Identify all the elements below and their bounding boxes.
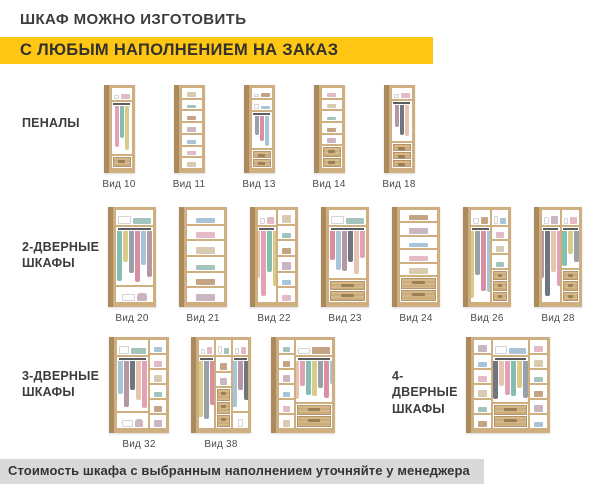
cabinet-illustration [321,207,369,307]
shelf-cell [187,288,224,302]
shelf-item [478,407,486,412]
zone-open [233,411,248,428]
cabinet-column [542,210,560,302]
drawer-handle [221,392,225,395]
shelf-item [551,216,558,224]
shelf-cell [530,385,547,400]
shelf-item [261,106,269,110]
hanging-rod [118,228,151,230]
cabinet-interior [474,340,547,428]
clothing-item [125,106,129,150]
clothing-item [265,116,269,145]
cabinet-card: Вид 21 [171,207,235,325]
zone-hang [329,225,366,278]
shelf-item [478,390,486,397]
drawer [563,292,579,301]
cabinet-view-label: Вид 21 [186,313,219,325]
cabinet-illustration [463,207,511,307]
clothing-item [244,361,248,400]
drawer-handle [398,163,404,166]
page-title: ШКАФ МОЖНО ИЗГОТОВИТЬ [20,11,246,28]
shelf-cell [474,340,491,355]
shelf-item [298,348,310,354]
cabinet-card: Вид 22 [242,207,306,325]
drawer-handle [118,160,124,163]
shelf-item [254,104,260,109]
cabinet-illustration [392,207,440,307]
cabinet-interior [279,340,332,428]
cabinet-column [400,210,437,302]
shelf-item [154,420,162,427]
clothing-item [123,231,128,263]
section-row-3-and-4-door: 3-ДВЕРНЫЕ ШКАФЫВид 32Вид 384-ДВЕРНЫЕ ШКА… [0,337,554,451]
shelf-cell [182,158,202,168]
shelf-cell [182,147,202,159]
cabinet-card: Вид 20 [100,207,164,325]
shelf-item [121,94,129,99]
shelf-item [207,347,212,354]
cabinet-card: Вид 38 [186,337,256,451]
shelf-cell [530,415,547,428]
cabinet-card: Вид 13 [228,85,290,191]
cabinet-card: Вид 10 [88,85,150,191]
drawer [393,160,411,167]
zone-drawers [112,154,132,168]
cabinet-view-label: Вид 26 [470,313,503,325]
shelf-item [500,218,506,224]
cabinet-column [329,210,366,302]
shelf-cell [278,257,296,273]
shelf-item [481,217,489,224]
hanging-clothes [233,357,248,411]
drawer-handle [504,419,516,422]
shelf-item [327,93,337,97]
shelf-item [118,216,131,224]
cabinet-card: Вид 32 [104,337,174,451]
clothing-item [260,116,264,140]
shelf-item [478,421,486,427]
shelf-cell [400,250,437,263]
cabinet-column [187,210,224,302]
clothing-item [261,231,266,296]
cabinet-column [258,210,276,302]
cabinet-card [268,337,338,451]
drawer [323,158,341,167]
drawer-handle [328,150,334,153]
shelf-item [282,280,291,285]
hanging-rod [393,102,411,104]
zone-top [542,210,560,225]
shelf-cell [279,355,294,370]
cabinet-interior [199,340,248,428]
cabinet-illustration [191,337,251,433]
shelf-item [534,377,542,382]
shelf-item [196,247,215,254]
shelf-item [283,406,290,412]
clothing-item [117,231,122,281]
drawer-handle [498,274,503,277]
shelf-item [283,347,290,352]
zone-shelves [530,340,547,428]
drawer-handle [221,418,225,421]
cabinet-interior [116,210,153,302]
clothing-item [300,361,305,386]
footer-note-text: Стоимость шкафа с выбранным наполнением … [8,463,470,478]
shelf-cell [150,415,166,428]
shelf-cell [182,135,202,147]
hanging-rod [253,113,271,115]
cabinet-column [199,340,214,428]
shelf-item [187,116,197,120]
clothing-item [142,361,147,408]
shelf-item [564,218,569,224]
drawer-handle [258,162,264,165]
clothing-item [354,231,359,274]
hanging-rod [119,358,147,360]
drawer-handle [398,155,404,158]
cabinet-interior [392,88,412,168]
zone-shelves [278,210,296,302]
clothing-item [542,231,544,278]
shelf-cell [322,123,342,135]
shelf-item [154,375,162,382]
shelf-item [409,256,428,261]
cabinet-view-label: Вид 22 [257,313,290,325]
shelf-item [187,127,197,132]
shelf-item [241,347,246,354]
drawer [217,389,230,401]
clothing-item [130,361,135,390]
shelf-cell [474,415,491,428]
zone-hang [493,355,528,402]
shelf-cell [322,111,342,123]
cabinet-view-label: Вид 24 [399,313,432,325]
shelf-item [496,232,504,238]
shelf-item [570,217,577,224]
cabinet-column [392,88,412,168]
drawer-handle [568,274,573,277]
cabinet-column [491,340,528,428]
cabinet-card: Вид 24 [384,207,448,325]
shelf-cell [150,400,166,415]
hanging-clothes [199,357,214,428]
cabinet-card: Вид 26 [455,207,519,325]
clothing-item [306,361,311,395]
shelf-item [495,346,507,354]
hanging-clothes [252,112,272,147]
shelf-item [267,217,274,224]
zone-drawers [492,268,508,302]
shelf-cell [474,400,491,415]
drawer-handle [341,284,354,287]
shelf-item [509,348,526,354]
hanging-clothes [258,227,276,302]
shelf-cell [279,415,294,428]
drawer [494,416,527,427]
hanging-clothes [112,102,132,154]
shelf-item [409,243,428,247]
shelf-cell [182,111,202,123]
clothing-item [118,361,123,394]
shelf-cell [530,400,547,415]
clothing-item [493,361,498,399]
clothing-item [487,231,490,292]
cabinet-column [322,88,342,168]
cabinet-interior [117,340,166,428]
cabinet-illustration [109,337,169,433]
shelf-cell [279,370,294,385]
drawer [330,291,365,301]
shelf-cell [182,100,202,112]
clothing-item [400,105,404,135]
shelf-cell [182,88,202,100]
cabinet-view-label: Вид 28 [541,313,574,325]
shelf-item [282,295,291,301]
cabinet-view-label: Вид 23 [328,313,361,325]
cabinet-column [279,340,294,428]
shelf-item [331,216,344,224]
shelf-item [534,422,542,427]
shelf-item [154,347,162,352]
clothing-item [574,231,579,262]
hanging-clothes [562,227,580,268]
drawer-handle [568,284,573,287]
shelf-cell [187,241,224,257]
bag-item [135,419,143,427]
cabinet-column [231,340,248,428]
clothing-item [342,231,347,272]
zone-shelves [279,340,294,428]
drawer-handle [308,408,321,411]
section-label: 4-ДВЕРНЫЕ ШКАФЫ [350,368,462,417]
shelf-item [187,151,197,155]
shelf-item [154,361,162,367]
drawer-handle [308,419,321,422]
zone-hang [116,225,153,286]
shelf-cell [278,210,296,226]
shelf-item [283,420,290,427]
drawer [494,405,527,416]
cabinet-view-label: Вид 10 [102,179,135,191]
section-label: 3-ДВЕРНЫЕ ШКАФЫ [0,368,104,401]
drawer-handle [221,405,225,408]
shelf-item [201,349,205,355]
cabinet-card: Вид 18 [368,85,430,191]
clothing-item [481,231,486,290]
drawer [297,405,331,416]
drawer [323,147,341,156]
shelf-cell [400,210,437,223]
shelf-cell [279,400,294,415]
clothing-item [330,361,332,385]
clothing-item [475,231,480,275]
zone-drawers [562,268,580,302]
drawer-handle [398,147,404,150]
cabinet-interior [187,210,224,302]
clothing-item [296,361,298,399]
cabinet-card: Вид 11 [158,85,220,191]
clothing-item [210,361,214,405]
zone-hang [117,355,148,411]
cabinet-column [116,210,153,302]
cabinet-illustration [250,207,298,307]
drawer [297,416,331,427]
zone-top [562,210,580,225]
cabinet-illustration [466,337,550,433]
zone-drawers [322,144,342,168]
zone-drawers [493,402,528,428]
zone-drawers [329,278,366,302]
zone-shelves [216,355,231,387]
shelf-cell [474,385,491,400]
hanging-rod [543,228,558,230]
shelf-item [494,216,498,224]
zone-hang [252,110,272,147]
zone-top [258,210,276,225]
shelf-item [282,233,291,238]
shelf-cell [322,100,342,112]
cabinet-column [474,340,491,428]
shelf-item [283,361,290,367]
clothing-item [360,231,365,258]
zone-top [392,88,412,99]
shelf-cell [279,340,294,355]
shelf-cell [492,227,508,241]
shelf-item [224,348,229,354]
shelf-item [282,248,291,254]
clothing-item [204,361,209,418]
shelf-item [154,392,162,397]
cabinet-interior [400,210,437,302]
section-row-penaly: ПЕНАЛЫВид 10Вид 11Вид 13Вид 14Вид 18 [0,85,438,191]
hanging-rod [331,228,364,230]
cabinet-column [471,210,490,302]
clothing-item [324,361,329,399]
hanging-rod [113,103,131,105]
clothing-item [545,231,550,296]
zone-shelves [474,340,491,428]
hanging-rod [200,358,213,360]
shelf-item [327,117,337,120]
clothing-item [124,361,129,407]
zone-drawers [296,402,332,428]
shelf-item [327,128,337,132]
shelf-item [394,94,400,98]
clothing-item [115,106,119,147]
zone-drawers [392,141,412,168]
shelf-item [473,218,479,224]
cabinet-view-label: Вид 32 [122,439,155,451]
cabinet-card: Вид 23 [313,207,377,325]
clothing-item [120,106,124,138]
clothing-item [336,231,341,271]
shelf-cell [474,370,491,385]
cabinet-illustration [174,85,205,173]
clothing-item [330,231,335,260]
zone-top [116,210,153,225]
shelf-cell [530,340,547,355]
zone-open [117,411,148,428]
clothing-item [517,361,522,388]
shelf-cell [150,370,166,385]
section-label: 2-ДВЕРНЫЕ ШКАФЫ [0,239,100,272]
hanging-clothes [296,357,332,402]
cabinet-illustration [244,85,275,173]
cabinet-illustration [179,207,227,307]
zone-top [471,210,490,225]
clothing-item [233,361,237,407]
shelf-cell [530,370,547,385]
drawer [401,278,436,289]
zone-top [252,88,272,98]
clothing-item [135,231,140,283]
shelf-item [122,420,132,427]
shelf-item [478,345,486,352]
clothing-item [348,231,353,262]
drawer-handle [341,294,354,297]
drawer-handle [258,154,264,157]
clothing-item [255,116,259,134]
zone-shelves [322,88,342,144]
shelf-cell [187,226,224,242]
shelf-cell [400,264,437,275]
zone-top [296,340,332,355]
shelf-item [114,95,120,99]
clothing-item [505,361,510,395]
zone-top [199,340,214,355]
zone-top [233,340,248,355]
clothing-item [141,231,146,265]
shelf-cell [492,241,508,255]
shelf-cell [216,357,231,373]
drawer-handle [498,295,503,298]
section-row-2-door: 2-ДВЕРНЫЕ ШКАФЫВид 20Вид 21Вид 22Вид 23В… [0,207,597,325]
shelf-cell [492,255,508,267]
hanging-clothes [471,227,490,302]
cabinet-card [462,337,554,451]
shelf-item [235,348,239,354]
cabinet-interior [112,88,132,168]
hanging-rod [234,358,247,360]
cabinet-interior [252,88,272,168]
zone-hang [199,355,214,428]
shelf-item [220,378,227,385]
clothing-item [562,231,567,266]
shelf-cell [187,273,224,289]
zone-shelves [400,210,437,275]
shelf-item [196,265,215,270]
cabinet-column [490,210,508,302]
shelf-item [238,419,242,427]
drawer [217,415,230,427]
cabinet-illustration [534,207,582,307]
drawer-handle [412,293,425,296]
hanging-rod [495,358,525,360]
cabinet-view-label: Вид 20 [115,313,148,325]
cabinet-column [182,88,202,168]
cabinet-column [214,340,231,428]
drawer [401,290,436,301]
zone-drawers [252,148,272,168]
hanging-clothes [329,227,366,278]
zone-open [116,285,153,302]
shelf-item [196,279,215,285]
cabinet-interior [182,88,202,168]
zone-shelves [492,225,508,268]
zone-hang [296,355,332,402]
drawer-handle [328,161,334,164]
cabinet-column [117,340,148,428]
